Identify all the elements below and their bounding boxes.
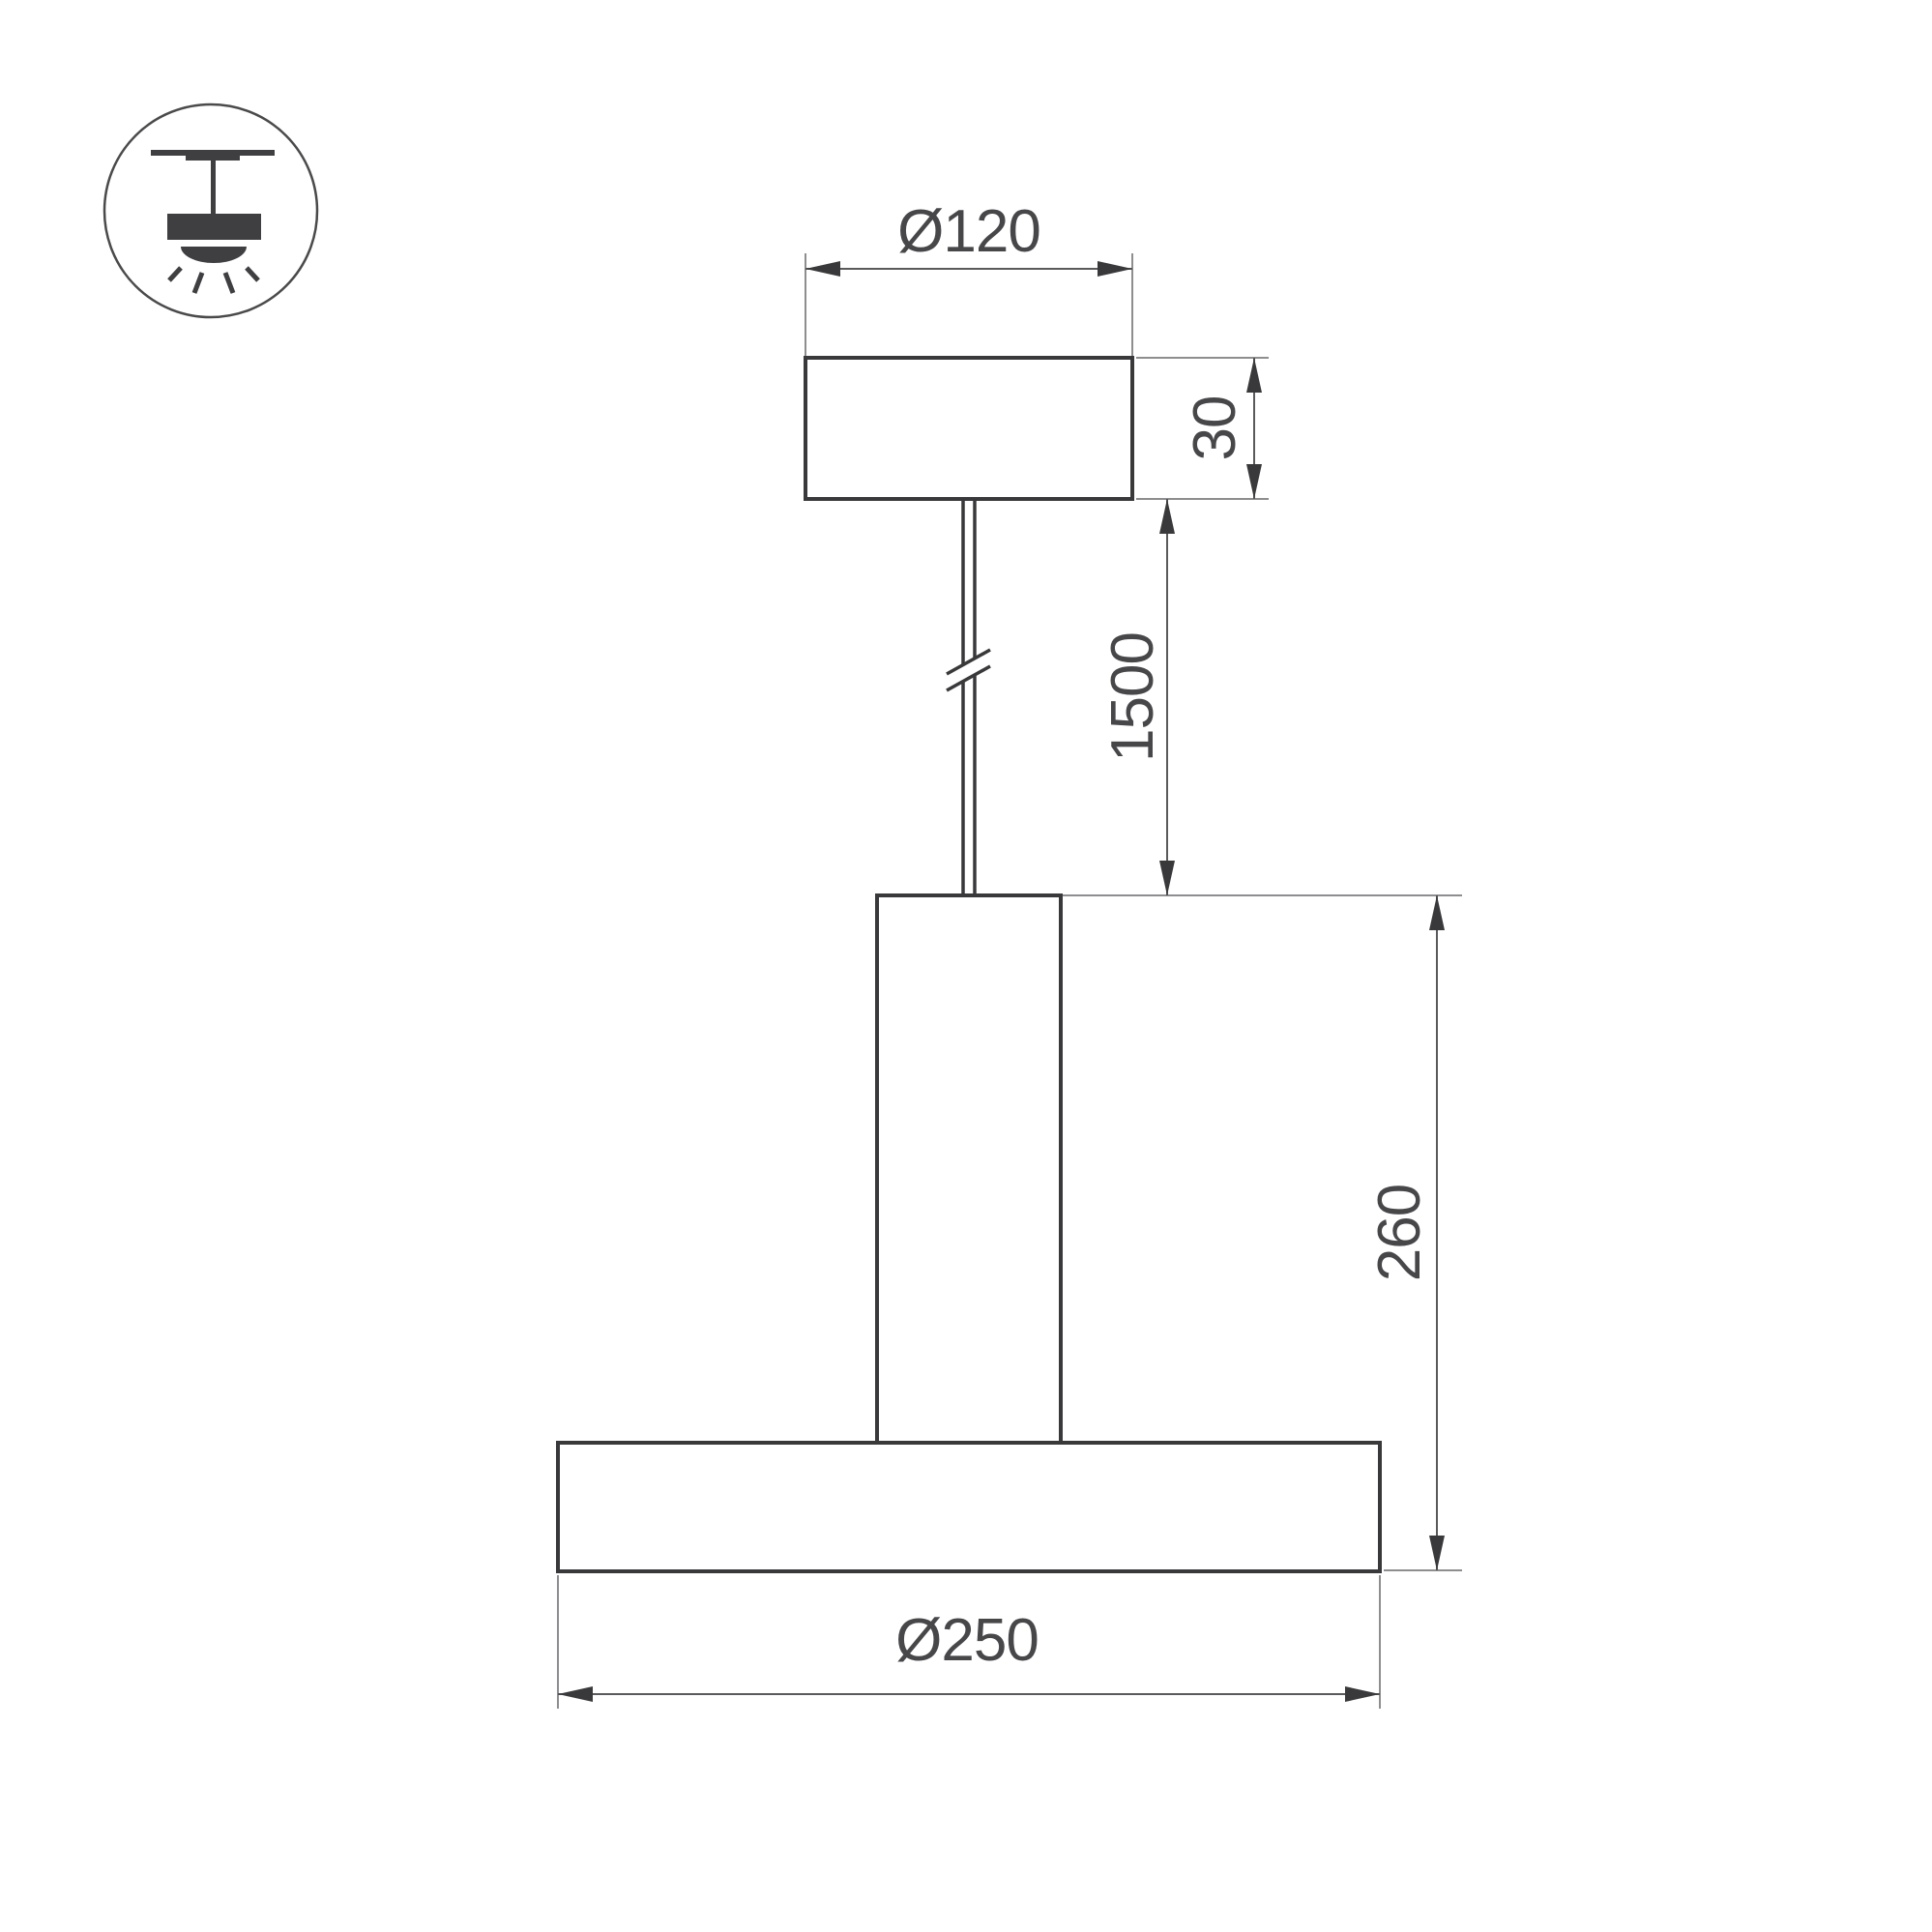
arrowhead-canopy-diameter-left (805, 261, 840, 277)
bottom-plate-outline (558, 1443, 1380, 1571)
fixture-outline (558, 358, 1380, 1571)
arrowhead-plate-diameter-right (1345, 1686, 1380, 1702)
icon-light-dome (181, 247, 247, 263)
icon-light-ray-outer-right (247, 268, 258, 280)
label-suspension-length: 1500 (1103, 632, 1163, 762)
icon-light-ray-inner-right (225, 273, 233, 293)
icon-suspension-rod (211, 161, 216, 214)
arrowhead-canopy-height-top (1246, 358, 1262, 393)
label-canopy-diameter: Ø120 (897, 202, 1040, 262)
label-plate-diameter: Ø250 (895, 1611, 1039, 1671)
arrowhead-canopy-diameter-right (1098, 261, 1132, 277)
label-canopy-height: 30 (1186, 396, 1245, 461)
arrowhead-plate-diameter-left (558, 1686, 593, 1702)
technical-drawing-canvas: Ø120 30 1500 260 Ø250 (0, 0, 1932, 1932)
icon-canopy-plate (186, 156, 240, 161)
label-fixture-height: 260 (1370, 1185, 1430, 1281)
canopy-outline (805, 358, 1132, 499)
icon-lamp-body (167, 214, 261, 240)
arrowhead-fixture-height-bottom (1429, 1536, 1445, 1570)
icon-light-ray-inner-left (194, 273, 202, 293)
arrowhead-canopy-height-bottom (1246, 464, 1262, 499)
arrowhead-suspension-bottom (1159, 861, 1175, 895)
extension-lines (558, 253, 1462, 1709)
arrowhead-suspension-top (1159, 499, 1175, 534)
dimension-lines (558, 261, 1445, 1702)
icon-ceiling-bar (151, 150, 275, 156)
arrowhead-fixture-height-top (1429, 895, 1445, 930)
body-cylinder-outline (877, 895, 1061, 1443)
icon-light-ray-outer-left (169, 268, 181, 280)
pendant-ceiling-light-icon (104, 104, 317, 317)
